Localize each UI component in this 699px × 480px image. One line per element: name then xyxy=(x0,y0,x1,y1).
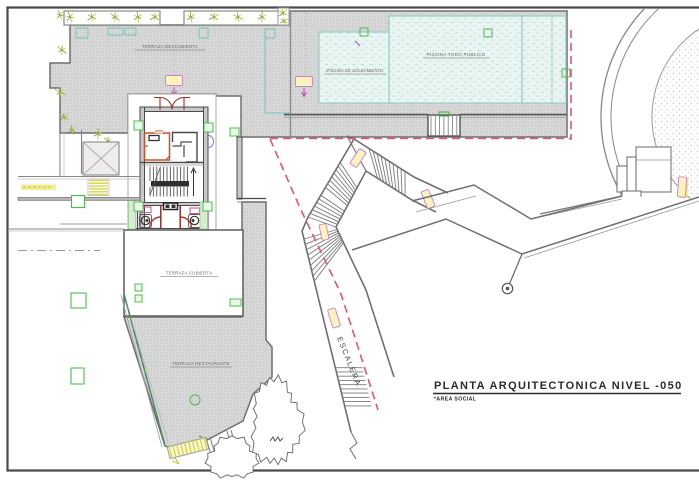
svg-text:TERRAZA DESCUBIERTA: TERRAZA DESCUBIERTA xyxy=(142,44,198,49)
svg-text:*AREA SOCIAL: *AREA SOCIAL xyxy=(434,397,477,403)
svg-text:TERRAZA RESTAURANTE: TERRAZA RESTAURANTE xyxy=(172,361,230,366)
svg-text:PLANTA ARQUITECTONICA NIVEL -0: PLANTA ARQUITECTONICA NIVEL -050 xyxy=(434,380,683,392)
svg-text:PISCINA TODO PUBLICO: PISCINA TODO PUBLICO xyxy=(427,52,486,57)
svg-text:TERRAZA CUBIERTA: TERRAZA CUBIERTA xyxy=(166,271,212,276)
svg-text:PISCINA DE SOLEAMIENTO: PISCINA DE SOLEAMIENTO xyxy=(326,68,384,73)
